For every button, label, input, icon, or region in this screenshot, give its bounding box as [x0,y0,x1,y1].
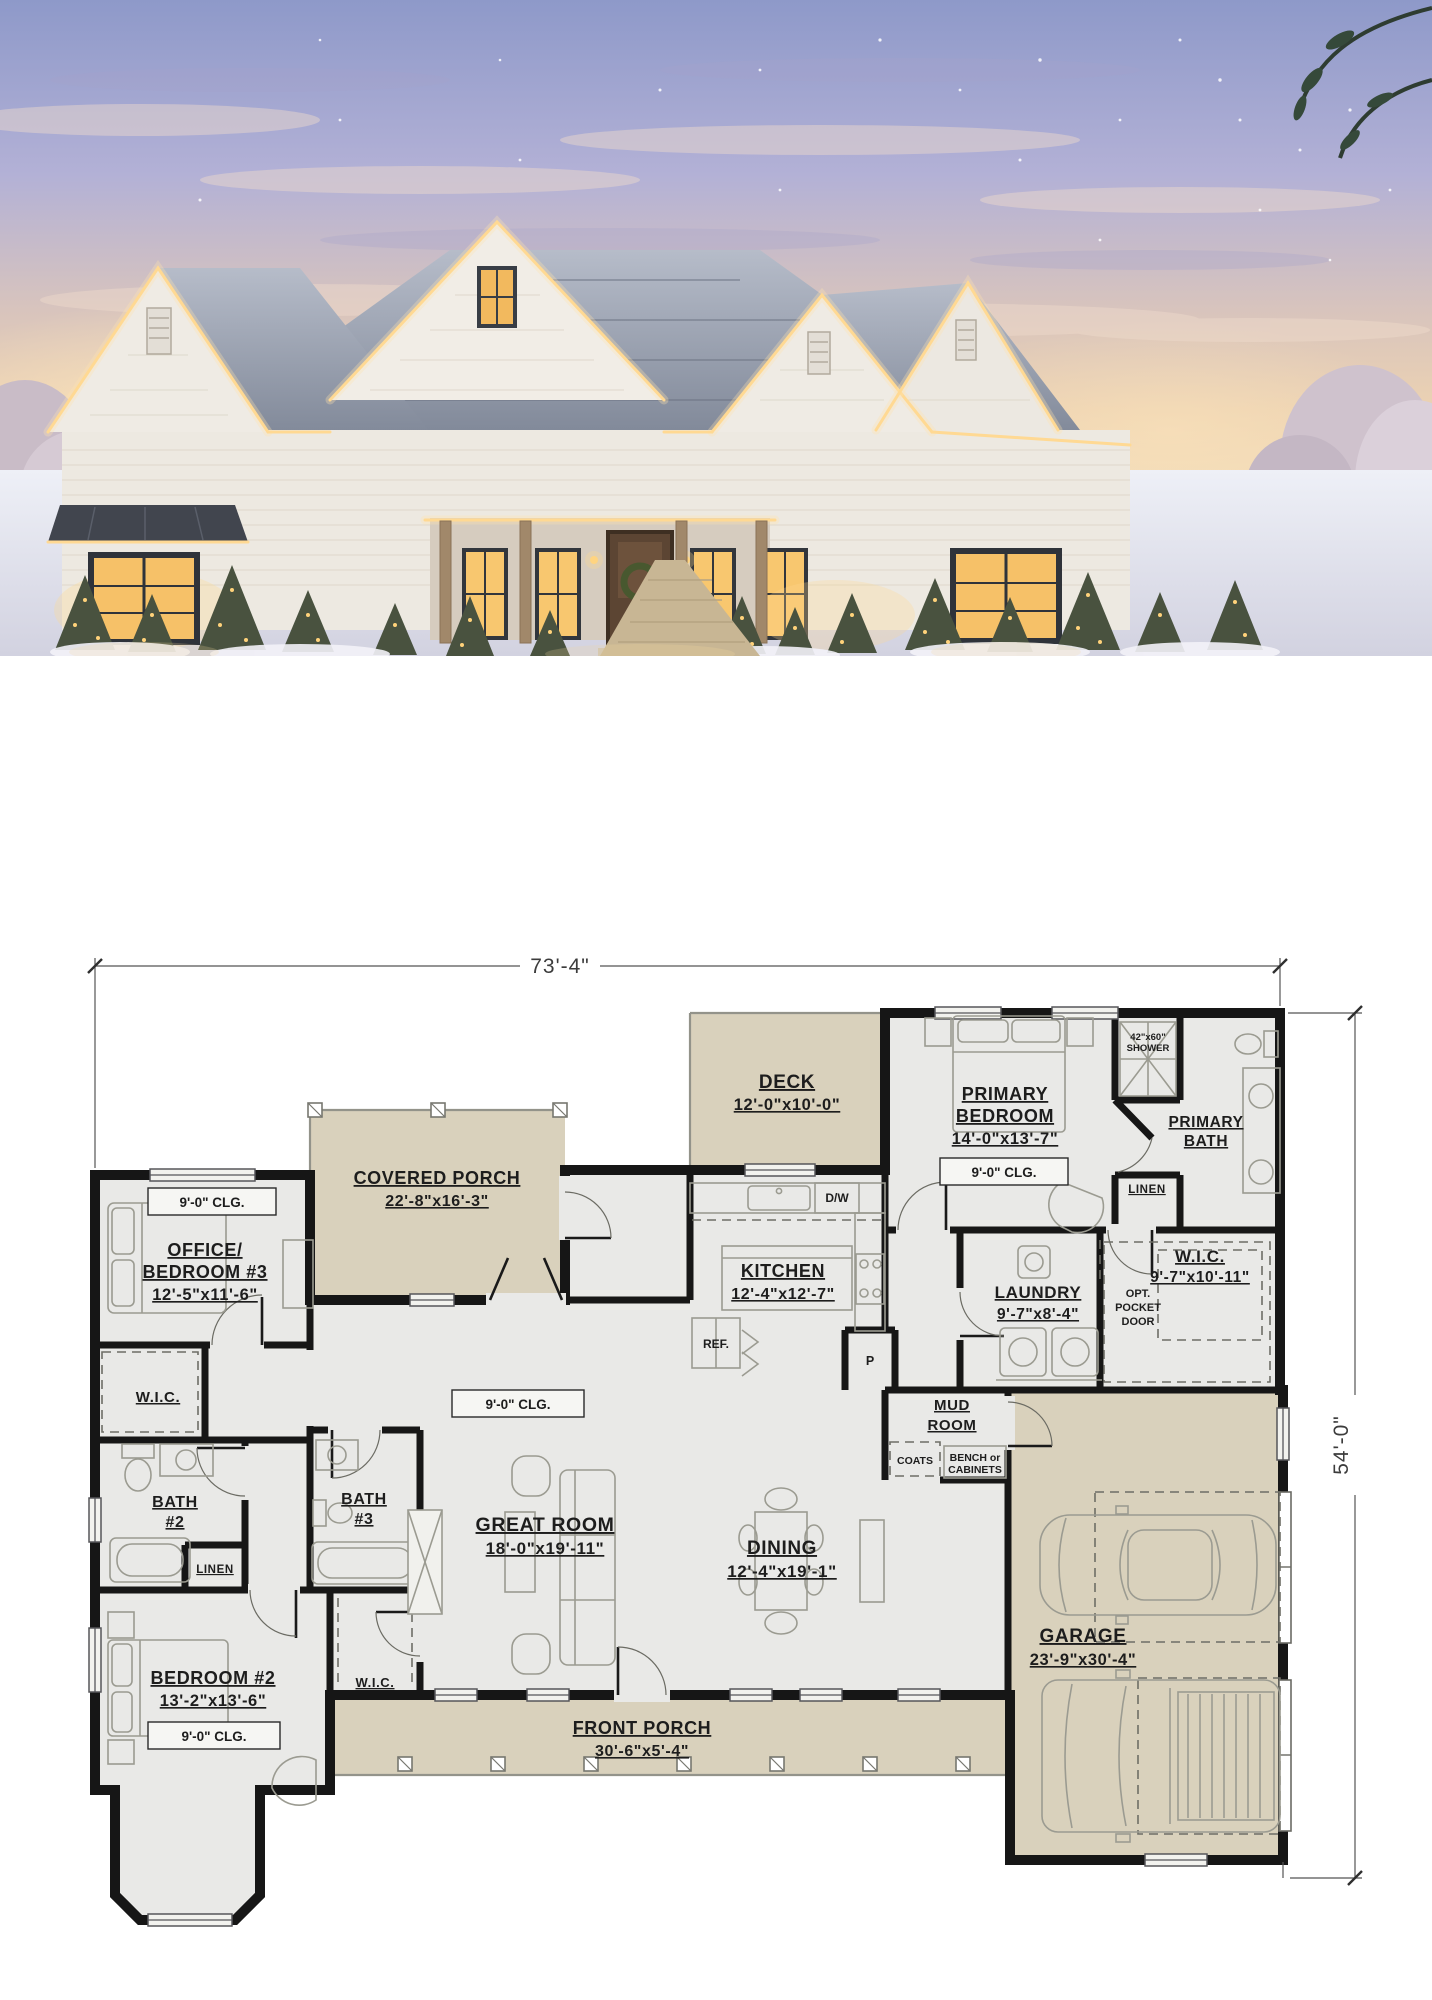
primary-bedroom-label-1: PRIMARY [962,1084,1049,1104]
page: 73'-4" 54'-0" DECK 12'-0"x10'-0" COVERED… [0,0,1432,2000]
primary-bedroom-label-2: BEDROOM [956,1106,1054,1126]
laundry-dims: 9'-7"x8'-4" [997,1306,1079,1323]
pocket-door-label-3: DOOR [1122,1316,1155,1328]
mud-room-label-1: MUD [934,1397,970,1414]
kitchen-label: KITCHEN [741,1261,825,1281]
height-dimension: 54'-0" [1330,1415,1353,1475]
bedroom2-dims: 13'-2"x13'-6" [160,1692,267,1710]
primary-bath-label-1: PRIMARY [1168,1114,1243,1131]
linen-left-label: LINEN [196,1564,234,1576]
pocket-door-label-1: OPT. [1126,1288,1150,1300]
bath3-label-1: BATH [341,1491,387,1508]
great-room-label: GREAT ROOM [476,1514,615,1536]
garage-area [1010,1390,1283,1860]
dining-dims: 12'-4"x19'-1" [727,1562,837,1581]
exterior-photo [0,0,1432,656]
ref-label: REF. [703,1337,729,1351]
pocket-door-label-2: POCKET [1115,1302,1161,1314]
mud-room-label-2: ROOM [927,1417,976,1434]
floor-plan: 73'-4" 54'-0" DECK 12'-0"x10'-0" COVERED… [0,656,1432,2000]
house [48,222,1130,656]
office-clg: 9'-0" CLG. [179,1195,244,1210]
great-room-clg: 9'-0" CLG. [485,1397,550,1412]
bench-label-2: CABINETS [948,1464,1002,1476]
office-label-1: OFFICE/ [167,1240,242,1260]
front-porch-dims: 30'-6"x5'-4" [595,1743,689,1760]
office-label-2: BEDROOM #3 [142,1262,267,1282]
bath2-label-1: BATH [152,1494,198,1511]
linen-primary-label: LINEN [1128,1184,1166,1196]
width-dimension: 73'-4" [530,955,590,978]
covered-porch-label: COVERED PORCH [354,1168,521,1188]
pantry-label: P [866,1354,874,1368]
garage-label: GARAGE [1040,1626,1127,1647]
office-dims: 12'-5"x11'-6" [152,1286,258,1304]
bath3-label-2: #3 [355,1511,374,1528]
coats-label: COATS [897,1455,933,1467]
floor-plan-svg: 73'-4" 54'-0" DECK 12'-0"x10'-0" COVERED… [0,656,1432,2000]
bath2-label-2: #2 [166,1514,185,1531]
exterior-photo-svg [0,0,1432,656]
window-awning [48,505,248,542]
covered-porch-dims: 22'-8"x16'-3" [385,1193,489,1210]
great-room-dims: 18'-0"x19'-11" [486,1539,605,1558]
wic-bedroom2-label: W.I.C. [356,1675,395,1690]
front-porch-label: FRONT PORCH [573,1718,712,1738]
dw-label: D/W [825,1191,849,1205]
garage-dims: 23'-9"x30'-4" [1030,1651,1137,1669]
wic-primary-label: W.I.C. [1175,1247,1225,1266]
primary-bedroom-dims: 14'-0"x13'-7" [952,1130,1059,1148]
bench-label-1: BENCH or [950,1452,1001,1464]
wic-left-label: W.I.C. [136,1389,180,1406]
primary-bath-label-2: BATH [1184,1133,1228,1150]
wic-primary-dims: 9'-7"x10'-11" [1150,1269,1250,1286]
laundry-label: LAUNDRY [995,1283,1082,1302]
bedroom2-label: BEDROOM #2 [150,1668,275,1688]
dining-label: DINING [747,1538,817,1559]
bedroom2-clg: 9'-0" CLG. [181,1729,246,1744]
deck-dims: 12'-0"x10'-0" [734,1096,841,1114]
shower-label-2: SHOWER [1127,1043,1170,1054]
kitchen-dims: 12'-4"x12'-7" [731,1286,835,1303]
shower-label-1: 42"x60" [1130,1032,1165,1043]
primary-bedroom-clg: 9'-0" CLG. [971,1165,1036,1180]
deck-label: DECK [759,1072,815,1093]
